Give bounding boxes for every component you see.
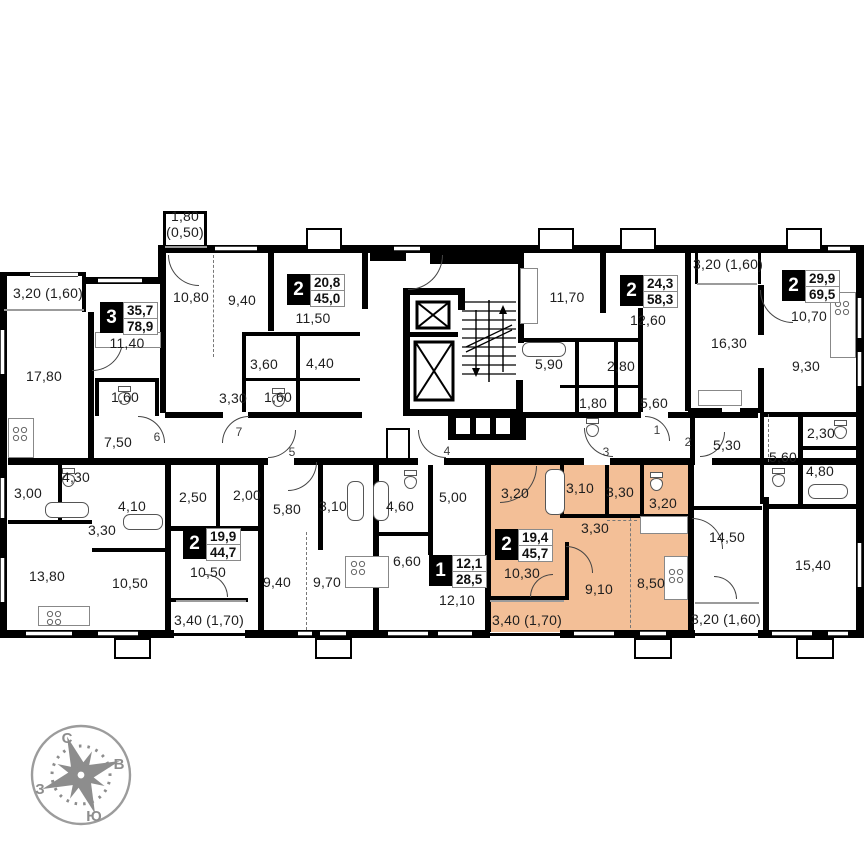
shaft-slot — [456, 418, 470, 434]
partition-wall — [488, 633, 562, 636]
room-area-value: 10,50 — [112, 575, 148, 591]
balcony-window — [4, 309, 84, 311]
room-area-label: 3,20 — [501, 485, 529, 501]
wall — [8, 458, 268, 465]
partition-wall — [378, 532, 430, 536]
wall — [516, 380, 523, 416]
room-area-label: 1,60 — [111, 389, 139, 405]
wall — [610, 458, 690, 465]
toilet-part — [586, 424, 599, 437]
apartment-living-area: 19,9 — [207, 529, 240, 544]
room-area-value: 3,40 (1,70) — [174, 612, 244, 628]
bathtub-icon — [347, 481, 364, 521]
wall — [248, 412, 362, 418]
room-area-label: 4,10 — [118, 498, 146, 514]
room-area-label: 2,50 — [179, 489, 207, 505]
window-marker — [857, 298, 862, 338]
entrance-number: 5 — [289, 445, 296, 459]
room-area-label: 14,50 — [709, 529, 745, 545]
room-area-value: 3,60 — [250, 356, 278, 372]
apartment-label[interactable]: 224,358,3 — [620, 275, 678, 308]
room-area-label: 3,40 (1,70) — [492, 612, 562, 628]
window-marker — [0, 558, 5, 602]
dashed-partition — [306, 532, 307, 630]
room-area-label: 4,60 — [386, 498, 414, 514]
apartment-label[interactable]: 219,445,7 — [495, 529, 553, 562]
apartment-label[interactable]: 335,778,9 — [100, 302, 158, 335]
room-area-label: 8,50 — [637, 575, 665, 591]
room-area-label: 3,20 (1,60) — [693, 256, 763, 272]
apartment-rooms-count: 2 — [495, 529, 518, 560]
partition-wall — [204, 211, 207, 249]
room-area-value: 3,10 — [566, 480, 594, 496]
bathtub-icon — [808, 484, 848, 499]
room-area-value: 10,30 — [504, 565, 540, 581]
room-area-label: 3,10 — [319, 498, 347, 514]
dashed-partition — [607, 520, 637, 521]
room-area-value: 3,20 (1,60) — [13, 285, 83, 301]
room-area-label: 4,30 — [62, 469, 90, 485]
window-marker — [388, 631, 428, 636]
wall — [763, 497, 769, 632]
room-area-label: 12,10 — [439, 592, 475, 608]
toilet-part — [404, 476, 417, 489]
room-area-value: 10,80 — [173, 289, 209, 305]
room-area-value: 3,40 (1,70) — [492, 612, 562, 628]
room-area-label: 15,40 — [795, 557, 831, 573]
window-marker — [98, 278, 142, 283]
window-marker — [298, 631, 312, 636]
dashed-partition — [213, 255, 214, 357]
room-area-value: 4,80 — [806, 463, 834, 479]
room-area-label: 3,60 — [250, 356, 278, 372]
wall — [760, 412, 764, 504]
room-area-value: 6,60 — [393, 553, 421, 569]
balcony-window — [165, 246, 207, 248]
room-area-label: 1,80(0,50) — [166, 208, 204, 240]
entrance-number: 2 — [685, 435, 692, 449]
apartment-living-area: 29,9 — [806, 271, 839, 286]
wall — [485, 465, 491, 632]
room-area-label: 2,30 — [807, 425, 835, 441]
room-area-value: 4,30 — [62, 469, 90, 485]
dashed-partition — [630, 518, 631, 628]
apartment-areas: 19,445,7 — [518, 529, 553, 562]
room-area-value: 4,40 — [306, 355, 334, 371]
stove-icon — [12, 426, 28, 442]
room-area-label: 3,10 — [566, 480, 594, 496]
room-area-label: 1,60 — [264, 389, 292, 405]
room-area-label: 9,10 — [585, 581, 613, 597]
toilet-icon — [772, 468, 785, 487]
apartment-rooms-count: 1 — [429, 555, 452, 586]
room-area-value: 15,40 — [795, 557, 831, 573]
room-area-value: 1,60 — [264, 389, 292, 405]
shaft-slot — [496, 418, 510, 434]
room-area-value: 9,70 — [313, 574, 341, 590]
room-area-value: 9,30 — [792, 358, 820, 374]
room-area-label: 3,30 — [581, 520, 609, 536]
partition-wall — [695, 248, 761, 251]
compass-east-label: В — [114, 756, 125, 773]
apartment-label[interactable]: 219,944,7 — [183, 528, 241, 561]
room-area-label: 1,80 — [579, 395, 607, 411]
compass-north-label: С — [62, 730, 73, 747]
room-area-value: 3,30 — [581, 520, 609, 536]
partition-wall — [560, 385, 640, 388]
toilet-icon — [834, 420, 847, 439]
apartment-rooms-count: 2 — [620, 275, 643, 306]
staircase-icon — [462, 300, 516, 382]
apartment-areas: 35,778,9 — [123, 302, 158, 335]
room-area-value: 5,90 — [535, 356, 563, 372]
room-area-value: 10,70 — [791, 308, 827, 324]
room-area-label: 7,50 — [104, 434, 132, 450]
apartment-living-area: 35,7 — [124, 303, 157, 318]
apartment-rooms-count: 2 — [782, 270, 805, 301]
room-area-value: 7,50 — [104, 434, 132, 450]
room-area-label: 2,80 — [607, 358, 635, 374]
room-area-label: 12,60 — [630, 312, 666, 328]
room-area-value: 8,50 — [637, 575, 665, 591]
wall — [740, 408, 758, 413]
balcony-window — [695, 602, 759, 604]
toilet-icon — [650, 472, 663, 491]
room-area-label: 5,60 — [769, 449, 797, 465]
room-area-value: 5,60 — [640, 395, 668, 411]
toilet-icon — [586, 418, 599, 437]
balcony-window — [176, 600, 246, 602]
apartment-label[interactable]: 220,845,0 — [287, 274, 345, 307]
room-area-value: 3,20 (1,60) — [693, 256, 763, 272]
room-area-label: 16,30 — [711, 335, 747, 351]
wall — [410, 332, 458, 337]
apartment-total-area: 78,9 — [124, 318, 157, 334]
window-marker — [0, 330, 5, 374]
room-area-label: 10,50 — [190, 564, 226, 580]
partition-wall — [242, 378, 360, 381]
wall — [694, 506, 762, 510]
apartment-rooms-count: 3 — [100, 302, 123, 333]
elevator-shaft-icon — [415, 300, 451, 330]
room-area-label: 6,60 — [393, 553, 421, 569]
room-area-label: 3,00 — [14, 485, 42, 501]
apartment-living-area: 19,4 — [519, 530, 552, 545]
room-area-label: 11,40 — [110, 335, 145, 351]
elevator-shaft-icon — [413, 340, 455, 402]
window-marker — [394, 246, 420, 251]
room-area-label: 13,80 — [29, 568, 65, 584]
door-arc — [288, 462, 317, 491]
door-arc — [138, 416, 165, 443]
room-area-value: 5,00 — [439, 489, 467, 505]
wall — [600, 253, 606, 313]
window-marker — [438, 631, 472, 636]
stove-icon — [350, 560, 366, 576]
entrance-number: 3 — [603, 445, 610, 459]
facade-protrusion — [620, 228, 656, 251]
room-area-value: 1,60 — [111, 389, 139, 405]
facade-protrusion — [538, 228, 574, 251]
apartment-total-area: 45,0 — [311, 290, 344, 306]
room-area-label: 10,80 — [173, 289, 209, 305]
bathtub-icon — [45, 502, 89, 518]
wall — [523, 412, 641, 418]
room-area-value: 11,40 — [110, 335, 145, 351]
room-area-label: 4,40 — [306, 355, 334, 371]
room-area-value: 11,50 — [296, 310, 331, 326]
toilet-part — [834, 426, 847, 439]
room-area-value: 9,10 — [585, 581, 613, 597]
room-area-label: 5,80 — [273, 501, 301, 517]
room-area-label: 9,40 — [263, 574, 291, 590]
bathtub-icon — [123, 514, 163, 530]
partition-wall — [614, 342, 618, 412]
room-area-value: 14,50 — [709, 529, 745, 545]
partition-wall — [640, 465, 644, 517]
compass-rose-icon: С В З Ю — [18, 712, 146, 840]
partition-wall — [95, 378, 99, 416]
room-area-label: 10,50 — [112, 575, 148, 591]
wall — [88, 312, 94, 458]
facade-protrusion — [306, 228, 342, 251]
room-area-value: 12,10 — [439, 592, 475, 608]
apartment-areas: 12,128,5 — [452, 555, 487, 588]
apartment-rooms-count: 2 — [287, 274, 310, 305]
facade-protrusion — [796, 638, 834, 659]
room-area-value: 3,30 — [606, 484, 634, 500]
floor-plan-page: 3,20 (1,60)17,8011,401,607,501,80(0,50)1… — [0, 0, 864, 864]
room-area-label: 5,90 — [535, 356, 563, 372]
room-area-value: 2,50 — [179, 489, 207, 505]
window-marker — [828, 246, 850, 251]
wall — [165, 412, 223, 418]
room-area-value: 5,30 — [713, 437, 741, 453]
entrance-number: 1 — [654, 423, 661, 437]
entrance-number: 4 — [444, 444, 451, 458]
balcony-window — [697, 283, 757, 285]
partition-wall — [242, 332, 360, 336]
wall — [763, 504, 856, 509]
apartment-total-area: 28,5 — [453, 571, 486, 587]
room-area-label: 11,50 — [296, 310, 331, 326]
room-area-label: 10,70 — [791, 308, 827, 324]
room-area-label: 3,30 — [88, 522, 116, 538]
room-area-label: 5,60 — [640, 395, 668, 411]
room-area-value: 16,30 — [711, 335, 747, 351]
room-area-value: 5,80 — [273, 501, 301, 517]
room-area-label: 3,30 — [219, 390, 247, 406]
wall — [688, 408, 722, 413]
partition-wall — [92, 548, 166, 552]
room-area-label: 9,70 — [313, 574, 341, 590]
partition-wall — [155, 378, 159, 416]
window-marker — [857, 543, 862, 587]
apartment-areas: 20,845,0 — [310, 274, 345, 307]
door-arc — [408, 255, 443, 290]
room-area-value: 4,10 — [118, 498, 146, 514]
facade-protrusion — [114, 638, 151, 659]
toilet-part — [650, 478, 663, 491]
room-area-value: 2,80 — [607, 358, 635, 374]
apartment-living-area: 20,8 — [311, 275, 344, 290]
stove-icon — [46, 610, 62, 626]
room-area-value: 3,20 (1,60) — [691, 611, 761, 627]
room-area-value: 11,70 — [550, 289, 585, 305]
apartment-label[interactable]: 229,969,5 — [782, 270, 840, 303]
window-marker — [98, 631, 138, 636]
room-area-value: 17,80 — [26, 368, 62, 384]
window-marker — [640, 631, 666, 636]
apartment-total-area: 69,5 — [806, 286, 839, 302]
apartment-rooms-count: 2 — [183, 528, 206, 559]
wall — [758, 368, 764, 413]
window-marker — [26, 631, 72, 636]
balcony-window — [490, 600, 564, 602]
facade-protrusion — [634, 638, 672, 659]
window-marker — [320, 631, 346, 636]
kitchen-counter — [640, 516, 688, 534]
room-area-label: 2,00 — [233, 487, 261, 503]
toilet-icon — [404, 470, 417, 489]
stove-icon — [668, 568, 684, 584]
room-area-value: 3,20 — [501, 485, 529, 501]
entrance-number: 6 — [154, 430, 161, 444]
door-arc — [168, 255, 199, 286]
room-area-label: 17,80 — [26, 368, 62, 384]
room-area-value: 9,40 — [228, 292, 256, 308]
window-marker — [828, 631, 848, 636]
apartment-total-area: 45,7 — [519, 545, 552, 561]
door-arc — [714, 576, 737, 599]
kitchen-counter — [698, 390, 742, 406]
wall — [798, 414, 803, 506]
room-area-label: 3,30 — [606, 484, 634, 500]
room-area-value: 3,10 — [319, 498, 347, 514]
door-arc — [418, 430, 446, 458]
room-area-value: 12,60 — [630, 312, 666, 328]
bathtub-icon — [545, 469, 565, 515]
partition-wall — [296, 336, 300, 412]
window-marker — [574, 631, 614, 636]
room-area-value: 3,00 — [14, 485, 42, 501]
wall — [685, 253, 691, 411]
apartment-label[interactable]: 112,128,5 — [429, 555, 487, 588]
room-area-label: 10,30 — [504, 565, 540, 581]
partition-wall — [800, 446, 856, 450]
apartment-living-area: 24,3 — [644, 276, 677, 291]
partition-wall — [8, 520, 92, 524]
apartment-total-area: 44,7 — [207, 544, 240, 560]
facade-protrusion — [386, 428, 410, 460]
wall — [268, 253, 274, 331]
facade-protrusion — [315, 638, 352, 659]
window-marker — [857, 352, 862, 386]
bathtub-icon — [522, 342, 566, 357]
apartment-areas: 24,358,3 — [643, 275, 678, 308]
room-area-value: 9,40 — [263, 574, 291, 590]
room-area-label: 3,40 (1,70) — [174, 612, 244, 628]
room-area-label: 3,20 (1,60) — [13, 285, 83, 301]
room-area-label: 11,70 — [550, 289, 585, 305]
room-area-value: 5,60 — [769, 449, 797, 465]
room-area-label: 3,20 — [649, 495, 677, 511]
room-area-label: 9,40 — [228, 292, 256, 308]
room-area-value: 3,30 — [88, 522, 116, 538]
wall — [444, 458, 584, 465]
room-area-value-2: (0,50) — [166, 224, 204, 240]
room-area-value: 1,80 — [579, 395, 607, 411]
partition-wall — [95, 378, 159, 382]
partition-wall — [216, 465, 220, 527]
room-area-value: 1,80 — [166, 208, 204, 224]
room-area-label: 9,30 — [792, 358, 820, 374]
wall — [430, 245, 522, 264]
facade-protrusion — [786, 228, 822, 251]
room-area-value: 2,00 — [233, 487, 261, 503]
room-area-value: 3,30 — [219, 390, 247, 406]
apartment-total-area: 58,3 — [644, 291, 677, 307]
room-area-value: 10,50 — [190, 564, 226, 580]
apartment-areas: 19,944,7 — [206, 528, 241, 561]
entrance-number: 7 — [236, 425, 243, 439]
room-area-value: 13,80 — [29, 568, 65, 584]
compass-west-label: З — [35, 781, 44, 798]
compass-south-label: Ю — [86, 808, 101, 825]
room-area-value: 4,60 — [386, 498, 414, 514]
window-marker — [772, 631, 812, 636]
room-area-label: 5,00 — [439, 489, 467, 505]
window-marker — [30, 272, 78, 277]
window-marker — [215, 246, 257, 251]
partition-wall — [693, 633, 760, 636]
toilet-part — [772, 474, 785, 487]
room-area-value: 2,30 — [807, 425, 835, 441]
wall — [362, 253, 368, 309]
room-area-label: 4,80 — [806, 463, 834, 479]
apartment-areas: 29,969,5 — [805, 270, 840, 303]
shaft-slot — [476, 418, 490, 434]
partition-wall — [428, 465, 433, 555]
window-marker — [0, 478, 5, 518]
wall — [763, 412, 856, 417]
wall — [403, 288, 410, 416]
room-area-label: 5,30 — [713, 437, 741, 453]
kitchen-counter — [520, 268, 538, 324]
partition-wall — [174, 633, 247, 636]
room-area-label: 3,20 (1,60) — [691, 611, 761, 627]
apartment-living-area: 12,1 — [453, 556, 486, 571]
room-area-value: 3,20 — [649, 495, 677, 511]
